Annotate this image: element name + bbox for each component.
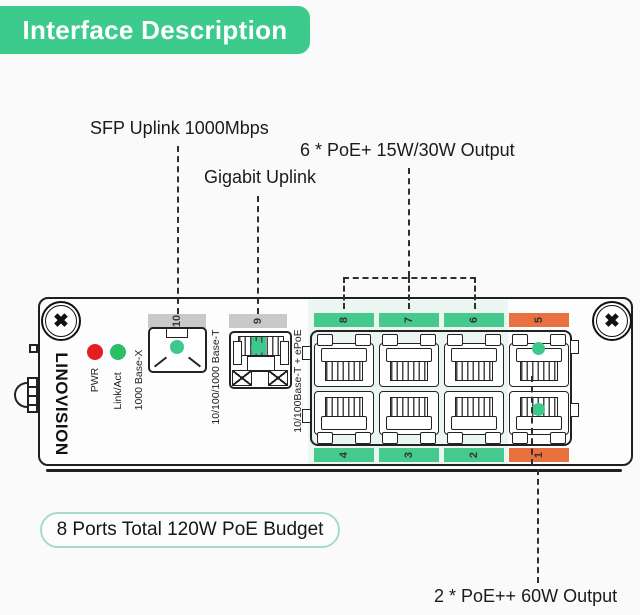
- port-number: 3: [403, 452, 415, 458]
- port-bar-5: 5: [509, 313, 569, 327]
- header-badge: Interface Description: [0, 6, 310, 54]
- pwr-led-icon: [87, 344, 103, 360]
- port-number: 7: [403, 317, 415, 323]
- callout-line-port6: [474, 277, 476, 309]
- ground-lug-plate: [27, 377, 38, 413]
- port-number: 6: [468, 317, 480, 323]
- chassis-base-line: [46, 469, 622, 472]
- port-number: 5: [533, 317, 545, 323]
- port-bar-4: 4: [314, 448, 374, 462]
- poe6-output-label: 6 * PoE+ 15W/30W Output: [300, 140, 515, 161]
- poe2-output-label: 2 * PoE++ 60W Output: [434, 586, 617, 607]
- pwr-led-label: PWR: [89, 368, 101, 393]
- screw-icon-right: ✖: [592, 301, 632, 341]
- port-bar-3: 3: [379, 448, 439, 462]
- callout-line-port8: [343, 277, 345, 309]
- port-number: 9: [252, 318, 264, 324]
- screw-cross-icon: ✖: [53, 312, 69, 331]
- port-number: 8: [338, 317, 350, 323]
- port-number: 1: [533, 452, 545, 458]
- linkact-led-icon: [110, 344, 126, 360]
- sfp-indicator-dot: [170, 340, 184, 354]
- uplink-type-label: 10/100/1000 Base-T: [210, 329, 222, 424]
- block-side-tab: [570, 403, 579, 417]
- poe-budget-label: 8 Ports Total 120W PoE Budget: [57, 519, 324, 541]
- callout-line-poe2-inner: [531, 376, 533, 465]
- port1-indicator-dot: [532, 403, 545, 416]
- callout-line-gigabit: [257, 196, 259, 314]
- block-side-tab: [302, 409, 311, 423]
- rj45-jack-2: [444, 391, 504, 444]
- gigabit-port-led-right: [268, 370, 288, 386]
- gigabit-port-led-left: [232, 370, 252, 386]
- poe-budget-pill: 8 Ports Total 120W PoE Budget: [40, 512, 340, 548]
- gigabit-indicator-dot: [251, 341, 264, 354]
- screw-icon-left: ✖: [41, 301, 81, 341]
- block-side-tab: [570, 340, 579, 354]
- port-bar-1: 1: [509, 448, 569, 462]
- linkact-led-label: Link/Act: [112, 372, 124, 409]
- gigabit-port-side-right: [280, 341, 289, 365]
- callout-line-poe2-outer: [537, 469, 539, 583]
- rj45-jack-3: [379, 391, 439, 444]
- interface-diagram: Interface Description SFP Uplink 1000Mbp…: [0, 0, 640, 615]
- gigabit-uplink-label: Gigabit Uplink: [204, 167, 316, 188]
- port-bar-9: 9: [229, 314, 287, 328]
- gigabit-port-center: [247, 356, 275, 371]
- page-title: Interface Description: [23, 15, 288, 46]
- callout-line-sfp: [177, 146, 179, 314]
- brand-logo: LINOVISION: [51, 352, 71, 455]
- port-bar-8: 8: [314, 313, 374, 327]
- port-bar-7: 7: [379, 313, 439, 327]
- gigabit-port-side-left: [233, 341, 242, 365]
- block-side-tab: [302, 346, 311, 360]
- port5-indicator-dot: [532, 342, 545, 355]
- rj45-jack-4: [314, 391, 374, 444]
- port-number: 2: [468, 452, 480, 458]
- screw-cross-icon: ✖: [604, 312, 620, 331]
- sfp-type-label: 1000 Base-X: [133, 350, 145, 411]
- chassis-notch: [29, 344, 38, 353]
- port-number: 10: [171, 315, 183, 327]
- callout-line-poe6-stem: [408, 168, 410, 277]
- port-bar-6: 6: [444, 313, 504, 327]
- sfp-port-tab: [166, 329, 188, 338]
- port-bar-10: 10: [148, 314, 206, 328]
- port-number: 4: [338, 452, 350, 458]
- sfp-uplink-label: SFP Uplink 1000Mbps: [90, 118, 269, 139]
- rj45-jack-7: [379, 334, 439, 387]
- rj45-jack-8: [314, 334, 374, 387]
- rj45-jack-1: [509, 391, 569, 444]
- callout-line-port7: [408, 277, 410, 309]
- rj45-jack-6: [444, 334, 504, 387]
- port-bar-2: 2: [444, 448, 504, 462]
